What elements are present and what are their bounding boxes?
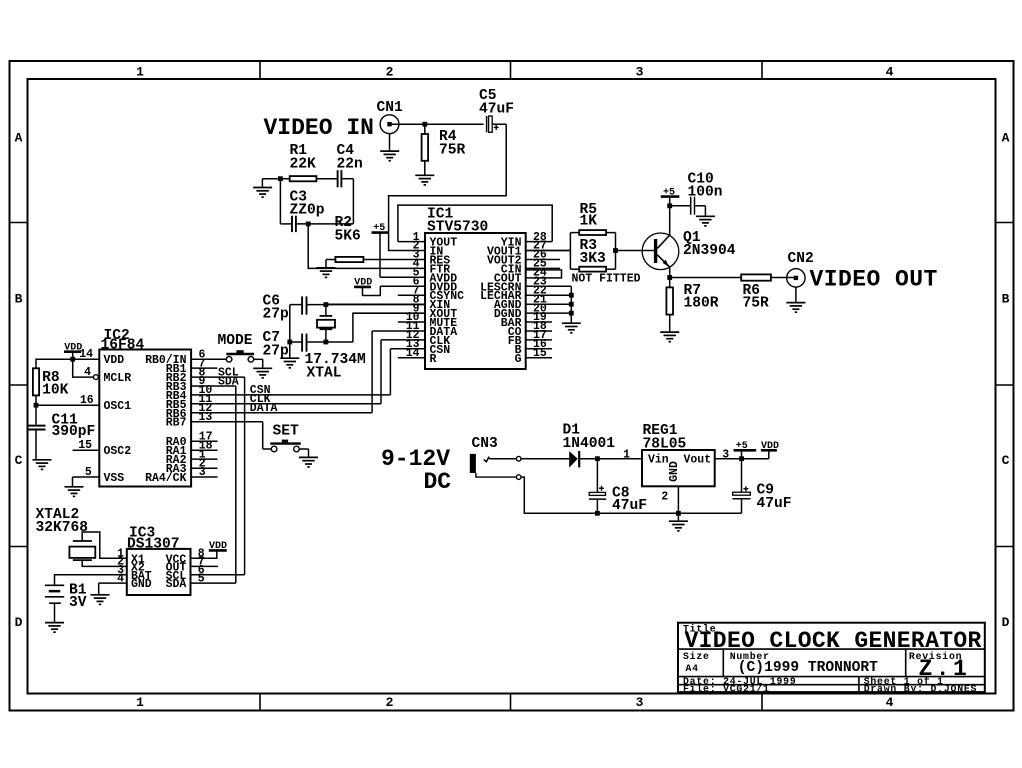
svg-text:5: 5	[85, 466, 92, 479]
svg-text:2: 2	[386, 64, 394, 79]
svg-text:STV5730: STV5730	[427, 220, 488, 236]
svg-text:3V: 3V	[69, 595, 87, 611]
svg-text:10K: 10K	[42, 382, 69, 398]
svg-text:OSC1: OSC1	[104, 400, 132, 413]
svg-text:5K6: 5K6	[335, 229, 361, 245]
svg-text:3: 3	[199, 466, 206, 479]
svg-text:CN1: CN1	[377, 100, 404, 116]
svg-text:VIDEO IN: VIDEO IN	[264, 115, 374, 141]
svg-text:CN3: CN3	[472, 436, 499, 452]
svg-text:Drawn By: D.JONES: Drawn By: D.JONES	[864, 683, 978, 694]
svg-text:2: 2	[661, 491, 668, 504]
svg-text:Vout: Vout	[684, 454, 712, 467]
svg-text:15: 15	[78, 439, 92, 452]
svg-text:22K: 22K	[290, 156, 317, 172]
svg-text:3: 3	[722, 449, 729, 462]
svg-text:R: R	[430, 353, 437, 366]
svg-text:16: 16	[80, 394, 94, 407]
svg-text:B: B	[15, 292, 23, 307]
svg-text:GND: GND	[668, 461, 681, 482]
svg-text:File: VCG21/1: File: VCG21/1	[683, 683, 770, 694]
svg-text:SET: SET	[273, 423, 300, 439]
svg-text:D: D	[15, 615, 23, 630]
svg-text:A: A	[15, 131, 23, 146]
svg-text:3K3: 3K3	[580, 251, 607, 267]
svg-text:B: B	[1002, 292, 1010, 307]
svg-text:RA4/CK: RA4/CK	[145, 472, 187, 485]
svg-text:DS1307: DS1307	[127, 537, 180, 553]
svg-text:15: 15	[533, 347, 547, 360]
svg-text:VDD: VDD	[104, 354, 125, 367]
svg-text:75R: 75R	[743, 295, 770, 311]
svg-text:47uF: 47uF	[479, 102, 514, 118]
svg-text:1K: 1K	[580, 214, 598, 230]
svg-text:OSC2: OSC2	[104, 445, 132, 458]
svg-text:C: C	[1002, 453, 1010, 468]
svg-text:A4: A4	[686, 663, 699, 674]
svg-text:VDD: VDD	[209, 541, 227, 552]
svg-text:CN2: CN2	[788, 251, 814, 267]
svg-text:ZZ0p: ZZ0p	[290, 202, 325, 218]
svg-text:75R: 75R	[439, 143, 466, 159]
svg-text:27p: 27p	[263, 343, 290, 359]
svg-text:MODE: MODE	[218, 333, 253, 349]
svg-text:27p: 27p	[263, 307, 290, 323]
svg-text:D: D	[1002, 615, 1010, 630]
svg-text:4: 4	[886, 64, 894, 79]
svg-text:47uF: 47uF	[757, 496, 792, 512]
svg-text:DC: DC	[424, 469, 452, 495]
svg-text:GND: GND	[131, 578, 152, 591]
svg-text:32K768: 32K768	[36, 520, 89, 536]
svg-text:Size: Size	[683, 651, 710, 662]
svg-text:13: 13	[199, 411, 213, 424]
svg-text:A: A	[1002, 131, 1010, 146]
svg-text:390pF: 390pF	[52, 424, 96, 440]
svg-text:NOT FITTED: NOT FITTED	[572, 273, 641, 286]
svg-text:180R: 180R	[684, 295, 719, 311]
svg-text:1: 1	[136, 695, 144, 710]
svg-text:2: 2	[386, 695, 394, 710]
svg-text:4: 4	[84, 366, 91, 379]
svg-text:47uF: 47uF	[612, 498, 647, 514]
svg-text:MCLR: MCLR	[104, 372, 132, 385]
svg-text:3: 3	[636, 64, 644, 79]
svg-text:VSS: VSS	[104, 472, 125, 485]
svg-text:C: C	[15, 453, 23, 468]
svg-text:14: 14	[406, 347, 420, 360]
svg-text:14: 14	[79, 348, 93, 361]
svg-text:1N4001: 1N4001	[563, 436, 616, 452]
svg-text:3: 3	[636, 695, 644, 710]
svg-text:1: 1	[623, 449, 630, 462]
svg-text:4: 4	[117, 572, 124, 585]
svg-text:G: G	[515, 353, 522, 366]
svg-text:100n: 100n	[688, 185, 723, 201]
svg-text:4: 4	[886, 695, 894, 710]
svg-text:VIDEO OUT: VIDEO OUT	[810, 266, 938, 292]
svg-text:1: 1	[136, 64, 144, 79]
svg-text:Vin: Vin	[648, 454, 669, 467]
svg-text:2N3904: 2N3904	[683, 243, 736, 259]
svg-text:XTAL: XTAL	[307, 365, 342, 381]
svg-text:RB7: RB7	[166, 417, 187, 430]
svg-text:DATA: DATA	[250, 402, 278, 415]
svg-text:SDA: SDA	[166, 578, 187, 591]
svg-text:(C)1999 TRONNORT: (C)1999 TRONNORT	[738, 660, 878, 676]
svg-text:22n: 22n	[337, 156, 363, 172]
svg-text:5: 5	[198, 572, 205, 585]
svg-text:16F84: 16F84	[101, 337, 145, 353]
